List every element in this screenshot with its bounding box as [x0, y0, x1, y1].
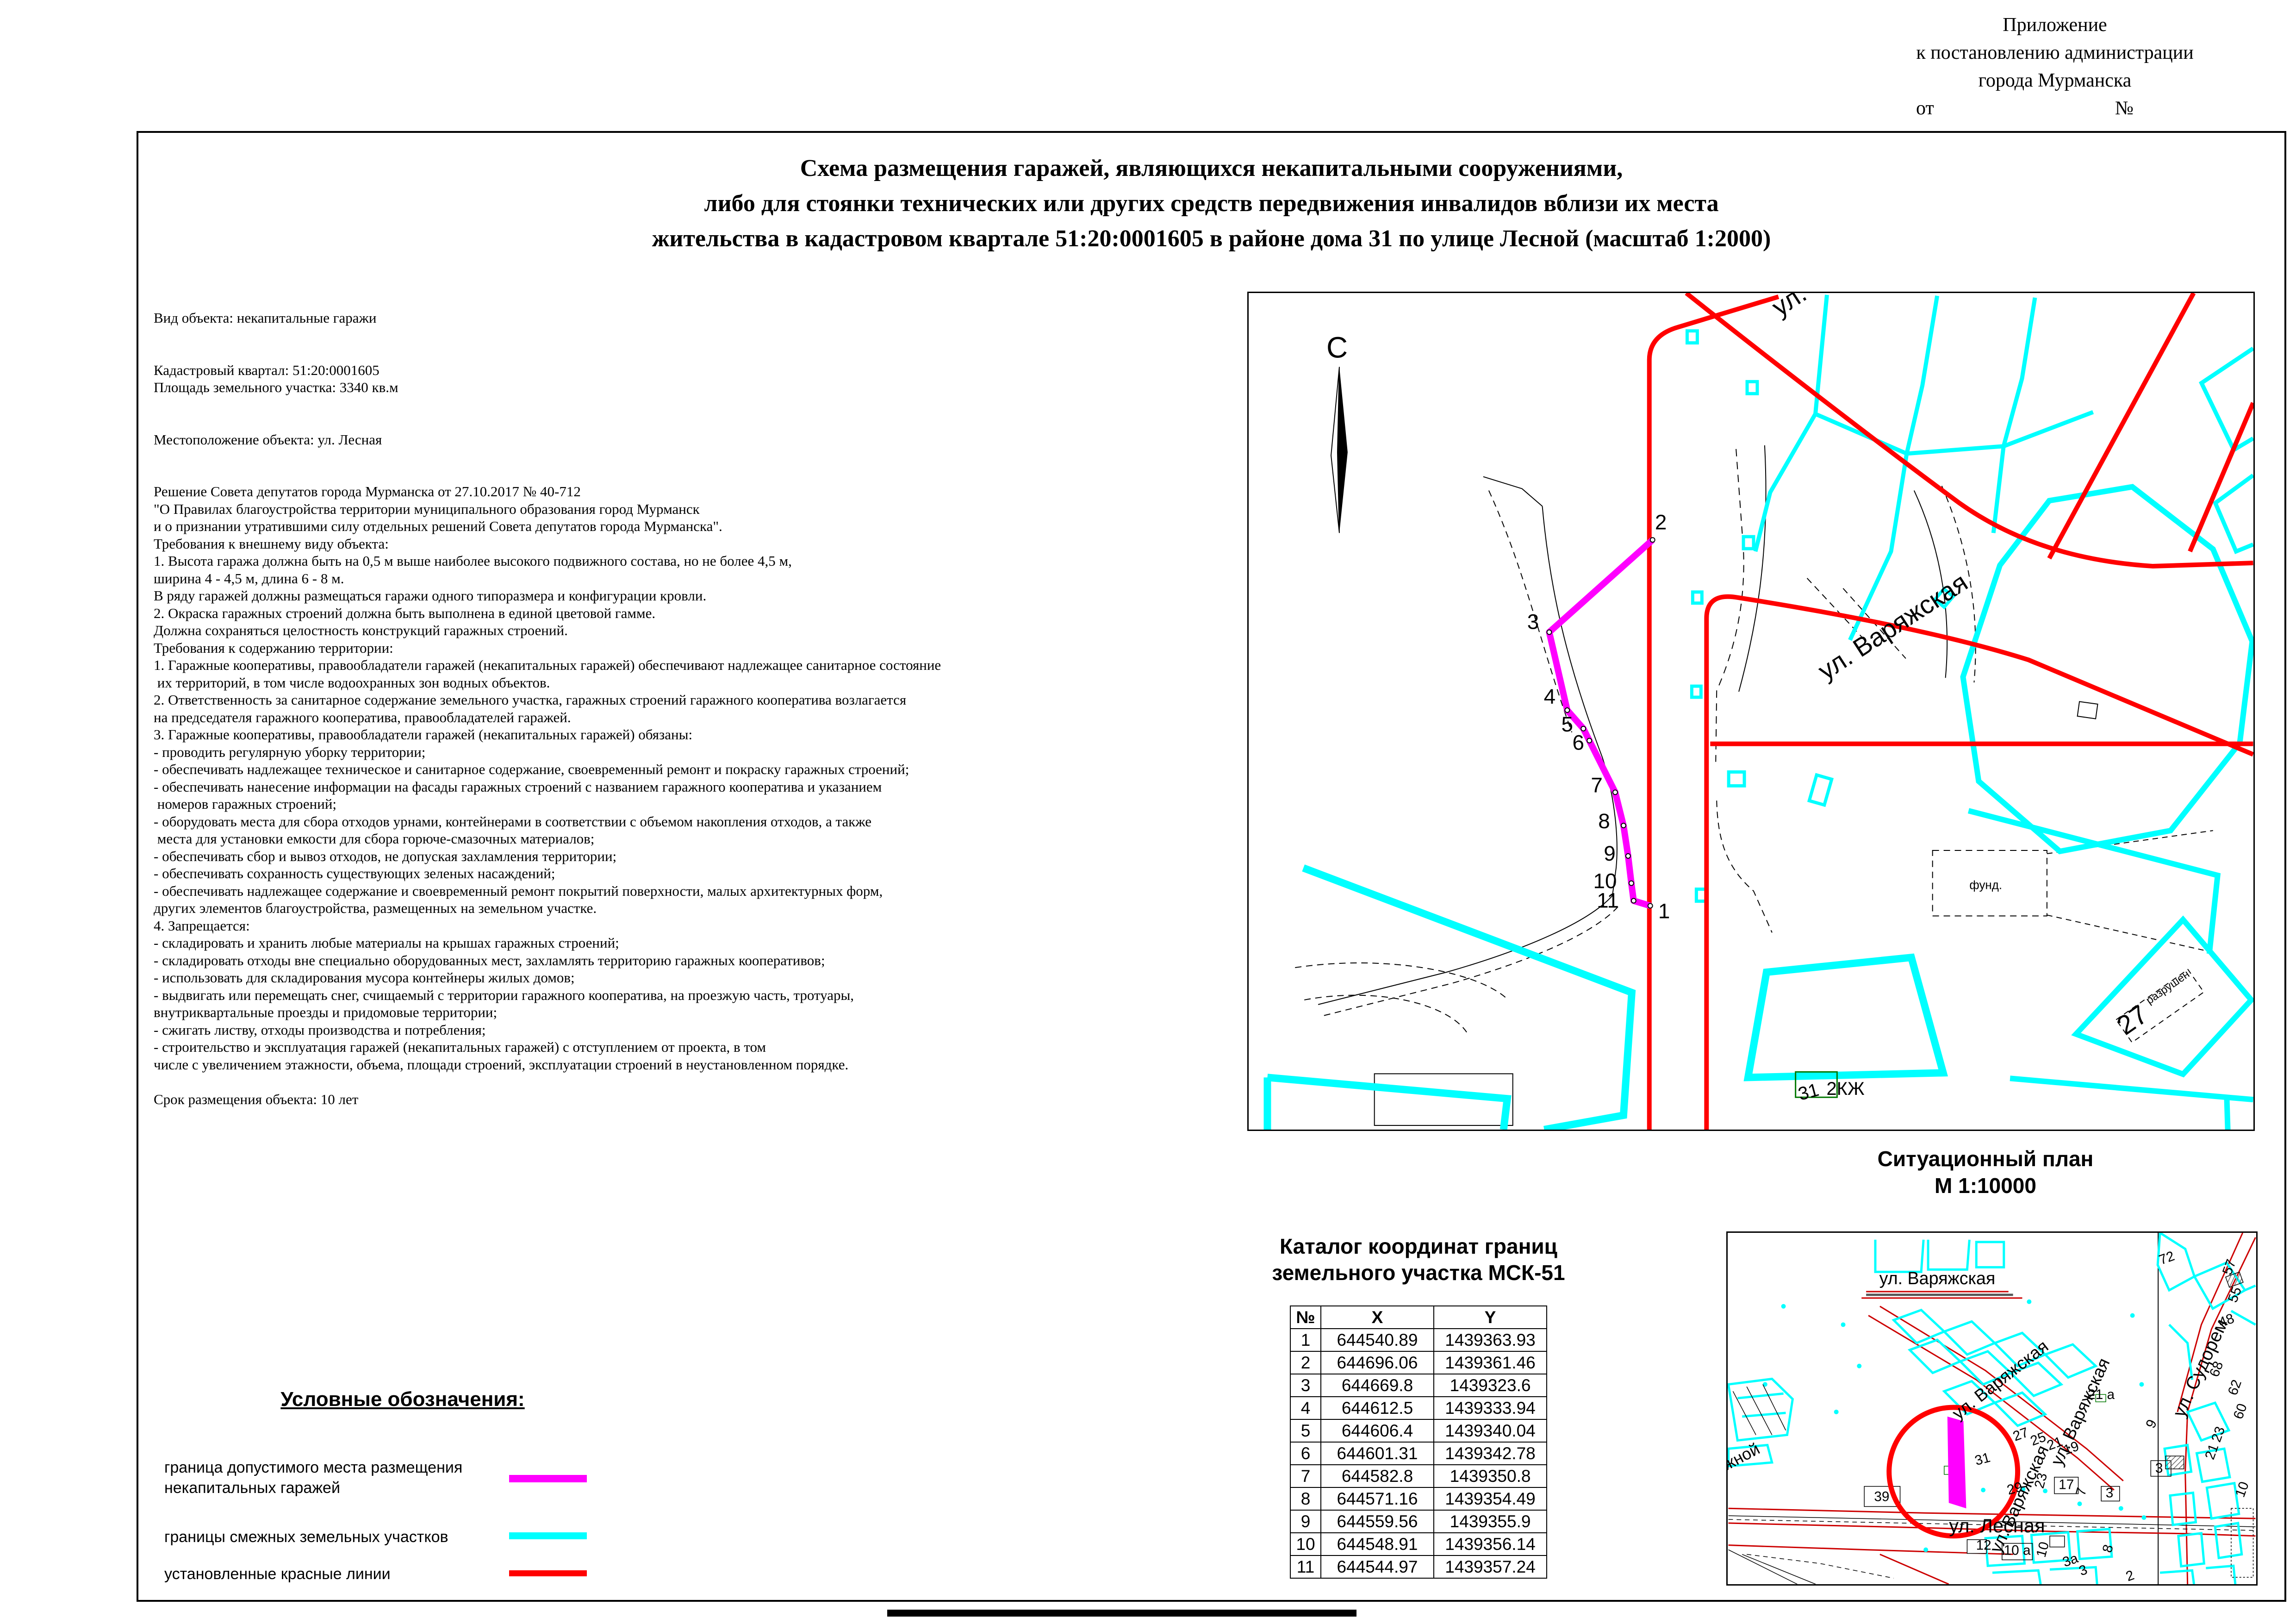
- title-line: либо для стоянки технических или других …: [137, 186, 2286, 221]
- minimap-number: 60: [2231, 1401, 2250, 1421]
- north-label: С: [1326, 331, 1348, 364]
- map-point-number: 2: [1655, 510, 1667, 534]
- table-row: 6644601.311439342.78: [1290, 1442, 1547, 1465]
- table-cell: 2: [1290, 1351, 1321, 1374]
- minimap-number: 12: [1976, 1538, 1991, 1553]
- bottom-bar: [887, 1610, 1356, 1617]
- map-point-number: 7: [1591, 773, 1603, 797]
- building-outline: [2078, 701, 2098, 718]
- coordinates-block: Каталог координат границ земельного учас…: [1268, 1233, 1569, 1579]
- legend-magenta-line: [509, 1475, 587, 1482]
- site-marker: [1948, 1417, 1966, 1508]
- table-row: 7644582.81439350.8: [1290, 1465, 1547, 1487]
- coordinates-title: Каталог координат границ земельного учас…: [1268, 1233, 1569, 1286]
- table-cell: 10: [1290, 1533, 1321, 1555]
- legend-item-label: граница допустимого места размещения нек…: [164, 1457, 462, 1498]
- situational-plan-title-line: М 1:10000: [1823, 1172, 2147, 1199]
- minimap-number: 7: [2073, 1486, 2090, 1498]
- adjacent-parcel-lines: [1267, 295, 2253, 1130]
- minimap-number: 39: [1874, 1489, 1889, 1504]
- table-cell: 644582.8: [1321, 1465, 1434, 1487]
- main-map-canvas: С 31 2КЖ фунд. 27 разрушен 1234567891011…: [1249, 293, 2253, 1130]
- building-type-label: 2КЖ: [1826, 1079, 1864, 1099]
- map-point-number: 6: [1572, 731, 1584, 755]
- table-cell: 644696.06: [1321, 1351, 1434, 1374]
- table-cell: 5: [1290, 1419, 1321, 1442]
- minimap-number: 3: [2077, 1562, 2090, 1579]
- coordinates-title-line: земельного участка МСК-51: [1268, 1260, 1569, 1286]
- table-row: 1644540.891439363.93: [1290, 1329, 1547, 1351]
- object-description: Вид объекта: некапитальные гаражи Кадаст…: [154, 309, 1237, 1108]
- table-row: 3644669.81439323.6: [1290, 1374, 1547, 1397]
- house-number-label: 31: [1796, 1080, 1821, 1105]
- street-label: ул. Варяжская: [1879, 1268, 1996, 1288]
- table-cell: 4: [1290, 1397, 1321, 1419]
- map-point-number: 1: [1658, 899, 1670, 923]
- title-line: жительства в кадастровом квартале 51:20:…: [137, 221, 2286, 256]
- situational-plan-title: Ситуационный план М 1:10000: [1823, 1145, 2147, 1199]
- minimap-number: 27: [2011, 1424, 2030, 1444]
- foundation-label: фунд.: [1969, 879, 2002, 892]
- minimap-number: 55: [2225, 1285, 2245, 1304]
- map-point-number: 3: [1527, 610, 1539, 634]
- title-line: Схема размещения гаражей, являющихся нек…: [137, 151, 2286, 186]
- minimap-number: 23: [2209, 1424, 2228, 1444]
- situational-plan-canvas: ул. Варяжскаяул. Варяжскаяул. Варяжскаяу…: [1728, 1233, 2256, 1584]
- street-label: жной: [1728, 1439, 1763, 1474]
- table-cell: 8: [1290, 1487, 1321, 1510]
- legend-item-label: границы смежных земельных участков: [164, 1527, 448, 1547]
- table-row: 2644696.061439361.46: [1290, 1351, 1547, 1374]
- street-label: ул. Варяжская: [1767, 293, 1927, 322]
- north-arrow: С: [1326, 331, 1348, 533]
- table-cell: 644548.91: [1321, 1533, 1434, 1555]
- column-header: X: [1321, 1306, 1434, 1329]
- minimap-hatch-lines: [1733, 1384, 1786, 1435]
- minimap-number: 21: [2202, 1442, 2221, 1462]
- house-number-label: 27: [2112, 999, 2153, 1041]
- street-label: ул. Варяжская: [1813, 567, 1973, 685]
- coordinates-title-line: Каталог координат границ: [1268, 1233, 1569, 1260]
- table-cell: 1439357.24: [1434, 1555, 1547, 1578]
- table-row: 11644544.971439357.24: [1290, 1555, 1547, 1578]
- minimap-number: 62: [2225, 1378, 2245, 1397]
- table-cell: 1439340.04: [1434, 1419, 1547, 1442]
- table-cell: 1439355.9: [1434, 1510, 1547, 1533]
- table-cell: 644601.31: [1321, 1442, 1434, 1465]
- minimap-number: 23: [2032, 1471, 2050, 1490]
- table-cell: 9: [1290, 1510, 1321, 1533]
- column-header: №: [1290, 1306, 1321, 1329]
- minimap-number: 72: [2157, 1248, 2177, 1268]
- table-cell: 1439323.6: [1434, 1374, 1547, 1397]
- table-cell: 1439350.8: [1434, 1465, 1547, 1487]
- table-row: 4644612.51439333.94: [1290, 1397, 1547, 1419]
- approval-line: города Мурманска: [1823, 67, 2286, 94]
- table-row: 9644559.561439355.9: [1290, 1510, 1547, 1533]
- minimap-number: 10 а: [2004, 1543, 2031, 1558]
- minimap-number: 2: [2124, 1568, 2136, 1584]
- table-cell: 1439354.49: [1434, 1487, 1547, 1510]
- table-cell: 644606.4: [1321, 1419, 1434, 1442]
- table-cell: 644612.5: [1321, 1397, 1434, 1419]
- table-cell: 1439333.94: [1434, 1397, 1547, 1419]
- column-header: Y: [1434, 1306, 1547, 1329]
- minimap-number: 31: [1973, 1450, 1992, 1468]
- legend-cyan-line: [509, 1532, 587, 1539]
- street-label: ул. Варяжская: [1986, 1442, 2053, 1555]
- table-cell: 644544.97: [1321, 1555, 1434, 1578]
- street-label: ул. Лесная: [1949, 1515, 2045, 1537]
- approval-from-line: от №: [1823, 94, 2286, 122]
- table-cell: 644669.8: [1321, 1374, 1434, 1397]
- legend-red-line: [509, 1570, 587, 1576]
- table-row: 5644606.41439340.04: [1290, 1419, 1547, 1442]
- map-point-number: 5: [1562, 712, 1574, 736]
- table-cell: 1439361.46: [1434, 1351, 1547, 1374]
- table-cell: 11: [1290, 1555, 1321, 1578]
- table-cell: 1439356.14: [1434, 1533, 1547, 1555]
- table-cell: 644571.16: [1321, 1487, 1434, 1510]
- ruined-label: разрушен: [2144, 968, 2192, 1007]
- minimap-number: 3: [2106, 1485, 2114, 1500]
- large-parcel-octagon: [1963, 487, 2252, 851]
- table-row: 8644571.161439354.49: [1290, 1487, 1547, 1510]
- approval-line: к постановлению администрации: [1823, 39, 2286, 67]
- from-label: от: [1916, 94, 1934, 122]
- approval-header: Приложение к постановлению администрации…: [1823, 11, 2286, 122]
- map-point-number: 9: [1604, 842, 1616, 865]
- table-cell: 6: [1290, 1442, 1321, 1465]
- minimap-number: 10: [2034, 1540, 2052, 1559]
- table-cell: 1439363.93: [1434, 1329, 1547, 1351]
- table-cell: 644540.89: [1321, 1329, 1434, 1351]
- map-point-number: 4: [1544, 685, 1556, 708]
- map-point-number: 8: [1598, 809, 1610, 833]
- minimap-number: 21 а: [2088, 1387, 2115, 1402]
- situational-plan-map: ул. Варяжскаяул. Варяжскаяул. Варяжскаяу…: [1726, 1231, 2258, 1586]
- table-cell: 644559.56: [1321, 1510, 1434, 1533]
- number-label: №: [2115, 94, 2134, 122]
- minimap-number: 17: [2059, 1477, 2074, 1493]
- minimap-number: 3: [2155, 1461, 2163, 1476]
- map-point-number: 11: [1597, 889, 1619, 912]
- table-cell: 1439342.78: [1434, 1442, 1547, 1465]
- coordinates-table: № X Y 1644540.891439363.932644696.061439…: [1290, 1305, 1547, 1579]
- table-cell: 3: [1290, 1374, 1321, 1397]
- legend-title: Условные обозначения:: [259, 1388, 546, 1411]
- minimap-number: 9: [2143, 1417, 2160, 1430]
- table-row: 10644548.911439356.14: [1290, 1533, 1547, 1555]
- main-map: С 31 2КЖ фунд. 27 разрушен 1234567891011…: [1247, 292, 2255, 1131]
- table-cell: 1: [1290, 1329, 1321, 1351]
- legend-item-label: установленные красные линии: [164, 1564, 391, 1584]
- minimap-number: 8: [2100, 1543, 2116, 1555]
- page-title: Схема размещения гаражей, являющихся нек…: [137, 151, 2286, 256]
- document-page: Приложение к постановлению администрации…: [0, 0, 2296, 1624]
- table-header-row: № X Y: [1290, 1306, 1547, 1329]
- approval-line: Приложение: [1823, 11, 2286, 39]
- red-lines: [1649, 293, 2253, 1130]
- situational-plan-title-line: Ситуационный план: [1823, 1145, 2147, 1172]
- table-cell: 7: [1290, 1465, 1321, 1487]
